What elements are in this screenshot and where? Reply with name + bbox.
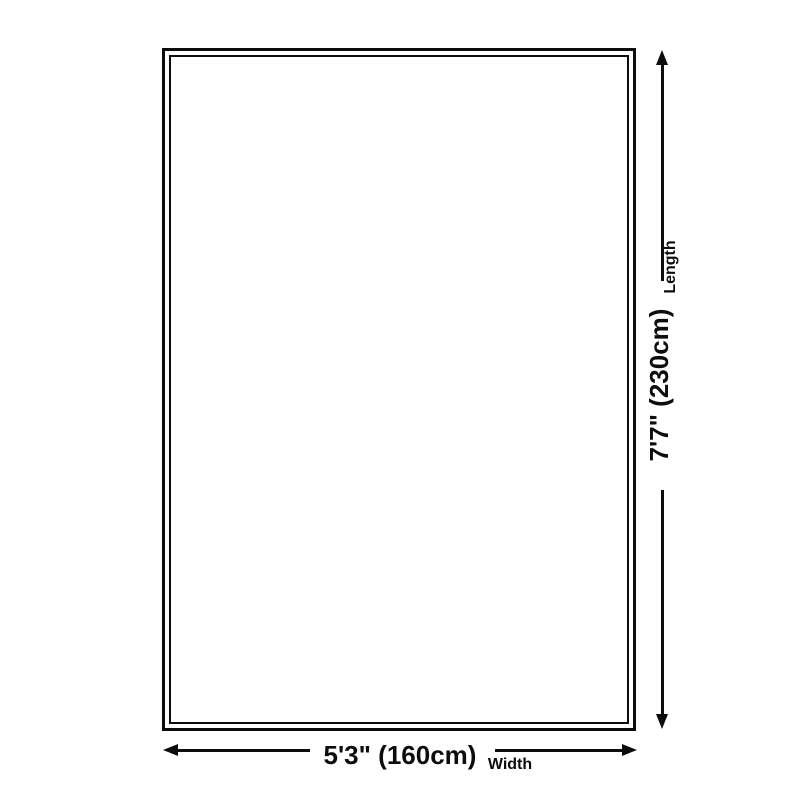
width-arrow-shaft-left <box>177 749 310 752</box>
arrowhead-up-icon <box>656 50 668 65</box>
rug-outline <box>162 48 636 731</box>
arrowhead-down-icon <box>656 714 668 729</box>
rug-inner-border <box>169 55 629 724</box>
width-value-label: 5'3" (160cm) <box>320 740 480 770</box>
width-axis-label: Width <box>483 756 537 774</box>
length-arrow-shaft-lower <box>661 490 664 716</box>
width-arrow-shaft-right <box>495 749 622 752</box>
arrowhead-left-icon <box>163 744 178 756</box>
length-value-label: 7'7" (230cm) <box>644 300 674 470</box>
length-axis-label: Length <box>662 232 680 302</box>
rug-size-diagram: Length 7'7" (230cm) 5'3" (160cm) Width <box>0 0 800 800</box>
arrowhead-right-icon <box>622 744 637 756</box>
